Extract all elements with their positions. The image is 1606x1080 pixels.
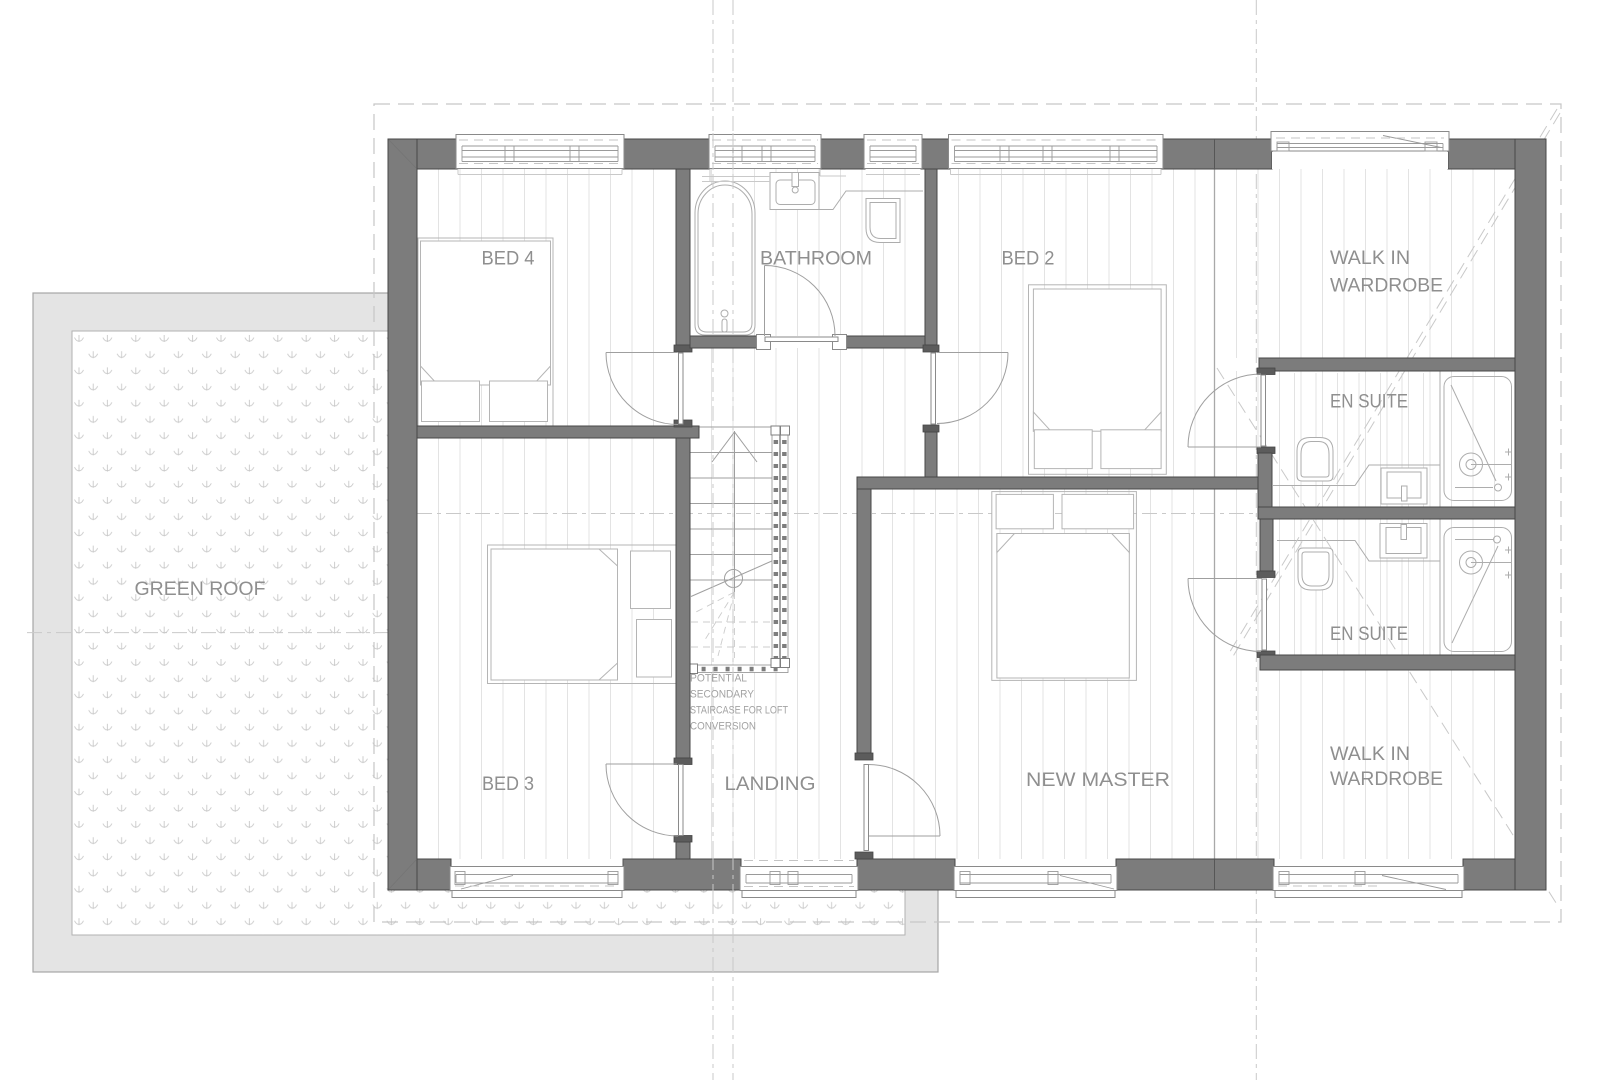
svg-text:NEW MASTER: NEW MASTER — [1026, 770, 1170, 791]
svg-text:STAIRCASE FOR LOFT: STAIRCASE FOR LOFT — [690, 705, 788, 717]
svg-text:WARDROBE: WARDROBE — [1330, 769, 1443, 790]
svg-text:POTENTIAL: POTENTIAL — [690, 673, 747, 685]
svg-text:WARDROBE: WARDROBE — [1330, 276, 1443, 297]
svg-text:BATHROOM: BATHROOM — [760, 249, 872, 270]
svg-text:BED 3: BED 3 — [482, 774, 534, 795]
svg-text:SECONDARY: SECONDARY — [690, 689, 755, 701]
svg-text:WALK IN: WALK IN — [1330, 248, 1410, 269]
svg-text:BED 4: BED 4 — [482, 249, 535, 270]
svg-text:EN SUITE: EN SUITE — [1330, 392, 1408, 413]
svg-text:WALK IN: WALK IN — [1330, 744, 1410, 765]
svg-text:LANDING: LANDING — [725, 774, 816, 795]
svg-text:BED 2: BED 2 — [1002, 249, 1055, 270]
svg-text:EN SUITE: EN SUITE — [1330, 624, 1408, 645]
svg-text:CONVERSION: CONVERSION — [690, 721, 756, 733]
svg-text:GREEN ROOF: GREEN ROOF — [135, 579, 266, 600]
